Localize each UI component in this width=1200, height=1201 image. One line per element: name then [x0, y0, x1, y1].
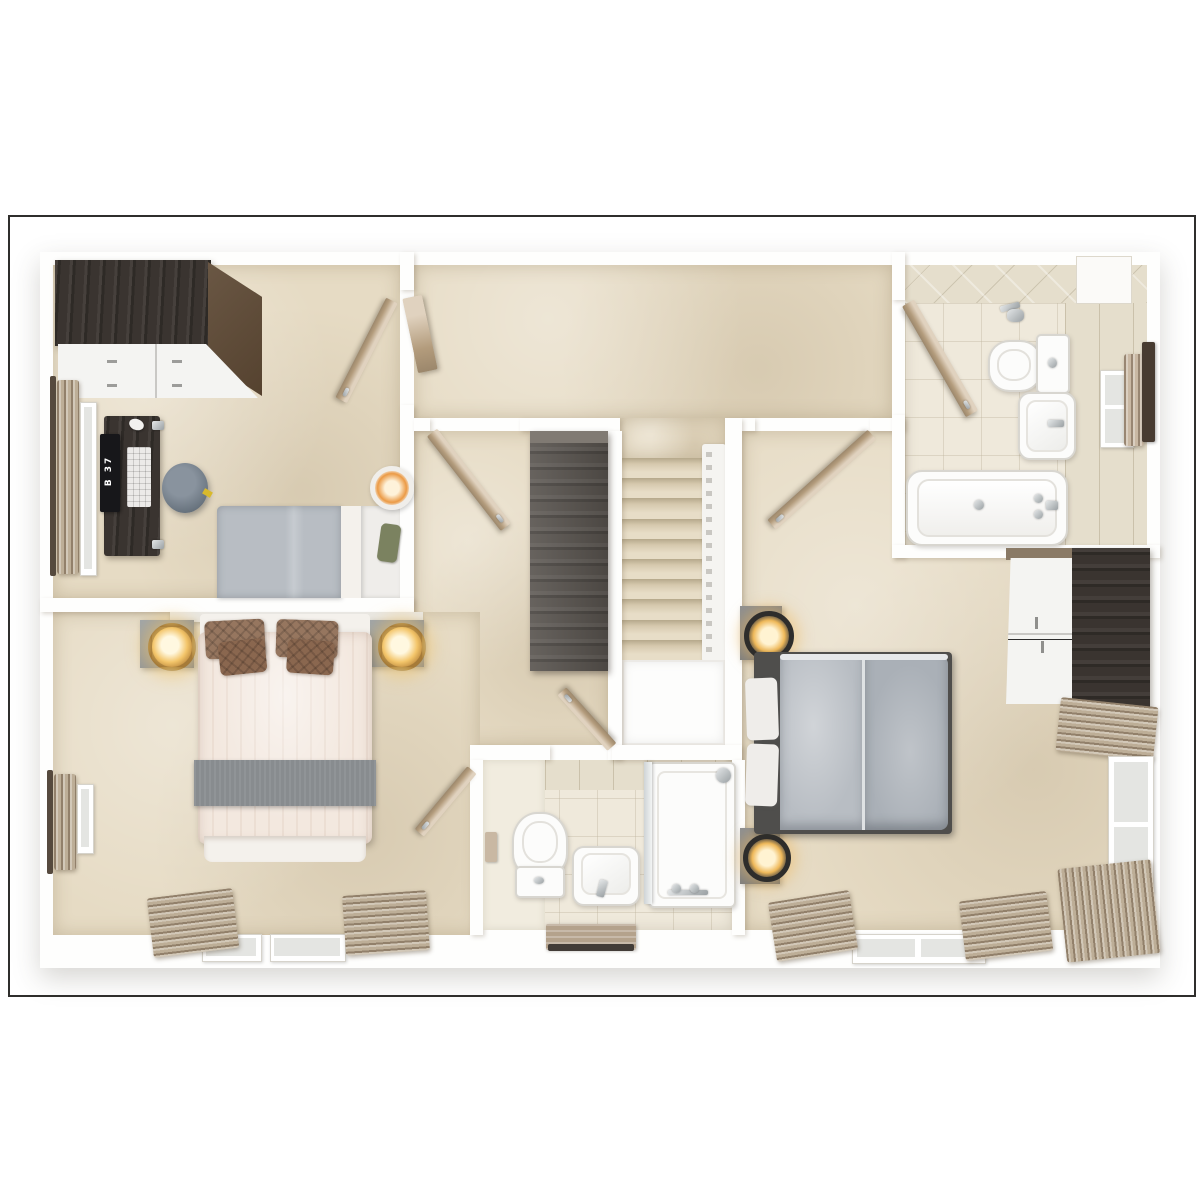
stair-step: [622, 599, 703, 619]
shower-tray-inner: [657, 771, 727, 899]
toilet: [988, 340, 1042, 392]
wardrobe-top: [55, 260, 211, 346]
toilet-cistern: [515, 866, 565, 898]
pillow-brown-small: [217, 638, 267, 677]
door-handle: [495, 514, 504, 524]
sink: [572, 846, 640, 906]
curtain: [147, 888, 240, 958]
tub-tap-knob: [1034, 494, 1043, 503]
shower-head: [716, 768, 731, 783]
curtain: [1055, 697, 1158, 761]
flush-button: [1048, 358, 1057, 368]
stair-step: [622, 539, 703, 559]
wall: [892, 415, 905, 558]
wardrobe-top-edge: [530, 431, 608, 443]
monitor-screen-text: B 37: [104, 436, 114, 506]
stair-step: [622, 579, 703, 599]
keyboard: [127, 447, 151, 507]
wall: [892, 252, 905, 300]
door-handle: [564, 694, 573, 703]
curtain: [768, 890, 858, 962]
curtain: [1057, 859, 1160, 962]
curtain: [342, 890, 430, 956]
window-glass: [857, 939, 915, 957]
foot-sheet: [204, 836, 366, 862]
curtain: [57, 380, 79, 574]
window: [77, 784, 94, 854]
floor-plan-page: B 37: [0, 0, 1200, 1201]
toilet-seat: [522, 821, 558, 863]
desk-monitor: B 37: [100, 434, 120, 512]
door-handle: [775, 514, 784, 523]
sink: [1018, 392, 1076, 460]
door-handle: [342, 387, 350, 397]
pillow-white: [745, 677, 779, 740]
pouf-stool: [162, 463, 208, 513]
duvet-gray: [217, 506, 341, 598]
stair-step: [622, 478, 703, 498]
wardrobe-tall: [530, 431, 608, 671]
window-glass: [1114, 762, 1148, 822]
shower-mixer-knob: [672, 884, 681, 893]
tub-spout: [1046, 501, 1058, 510]
towel-small: [485, 832, 497, 862]
shower-enclosure: [644, 762, 732, 905]
shower-mixer-knob: [690, 884, 699, 893]
curtain: [959, 891, 1054, 961]
shower-head: [1007, 309, 1024, 322]
stair-step: [622, 620, 703, 640]
bathtub: [906, 470, 1068, 546]
stair-step: [622, 458, 703, 478]
stair-banister: [702, 444, 726, 662]
bathroom-exterior-recess: [1076, 256, 1132, 304]
wall: [608, 431, 622, 760]
wall: [40, 598, 414, 612]
bath-mat-edge: [548, 944, 634, 951]
window-glass: [84, 407, 92, 569]
stair-step: [622, 640, 703, 660]
stair-step: [622, 519, 703, 539]
staircase: [622, 458, 703, 660]
wall: [400, 405, 414, 612]
landing-floor: [414, 265, 892, 418]
stair-step: [622, 559, 703, 579]
pillow-brown-small: [286, 638, 335, 675]
wardrobe-right-wood: [1070, 548, 1150, 708]
desk-bracket: [152, 421, 164, 430]
wall: [470, 760, 483, 935]
bedside-lamp-gold: [148, 623, 196, 671]
toilet-cistern: [1036, 334, 1070, 394]
curtain-rail: [47, 770, 53, 874]
door-handle: [421, 821, 430, 830]
stair-step: [622, 498, 703, 518]
tub-drain: [974, 500, 984, 510]
stairwell-void: [622, 660, 725, 745]
wall: [725, 418, 742, 760]
bed-master: [198, 612, 372, 862]
sheet-fold: [341, 506, 361, 598]
curtain-rail: [50, 376, 56, 576]
wall: [520, 418, 620, 431]
towel-hanging: [1124, 354, 1144, 446]
towel-rail-panel: [1142, 342, 1155, 442]
wall: [470, 745, 550, 760]
bed-double-right: [742, 650, 952, 836]
bed-runner-gray: [194, 760, 376, 806]
bedside-lamp-gold: [378, 623, 426, 671]
wall: [742, 418, 755, 431]
duvet-top-fold: [780, 654, 948, 660]
bathtub-inner: [917, 479, 1057, 537]
toilet-seat: [997, 349, 1031, 381]
floor-lamp-white: [370, 466, 414, 510]
window-glass: [81, 789, 89, 847]
window: [270, 934, 346, 962]
pillow-white: [745, 743, 779, 806]
desk-bracket: [152, 540, 164, 549]
wall: [400, 252, 414, 290]
window-glass: [274, 938, 340, 956]
banister-spindles: [706, 452, 712, 654]
bed-single: [217, 506, 400, 598]
duvet-center-fold: [862, 656, 865, 830]
duvet-gray-left-half: [780, 656, 864, 830]
door-handle: [963, 400, 971, 410]
shower-glass-panel: [644, 762, 652, 904]
window: [80, 402, 97, 576]
duvet-gray-right-half: [864, 656, 948, 830]
tub-tap-knob: [1034, 510, 1043, 519]
curtain: [54, 774, 76, 870]
wardrobe-right-doors: [1006, 558, 1072, 704]
wall: [414, 418, 430, 431]
bedside-lamp-black: [743, 834, 791, 882]
sink-tap: [1048, 420, 1064, 427]
flush-button: [534, 877, 544, 884]
wall: [612, 745, 742, 760]
